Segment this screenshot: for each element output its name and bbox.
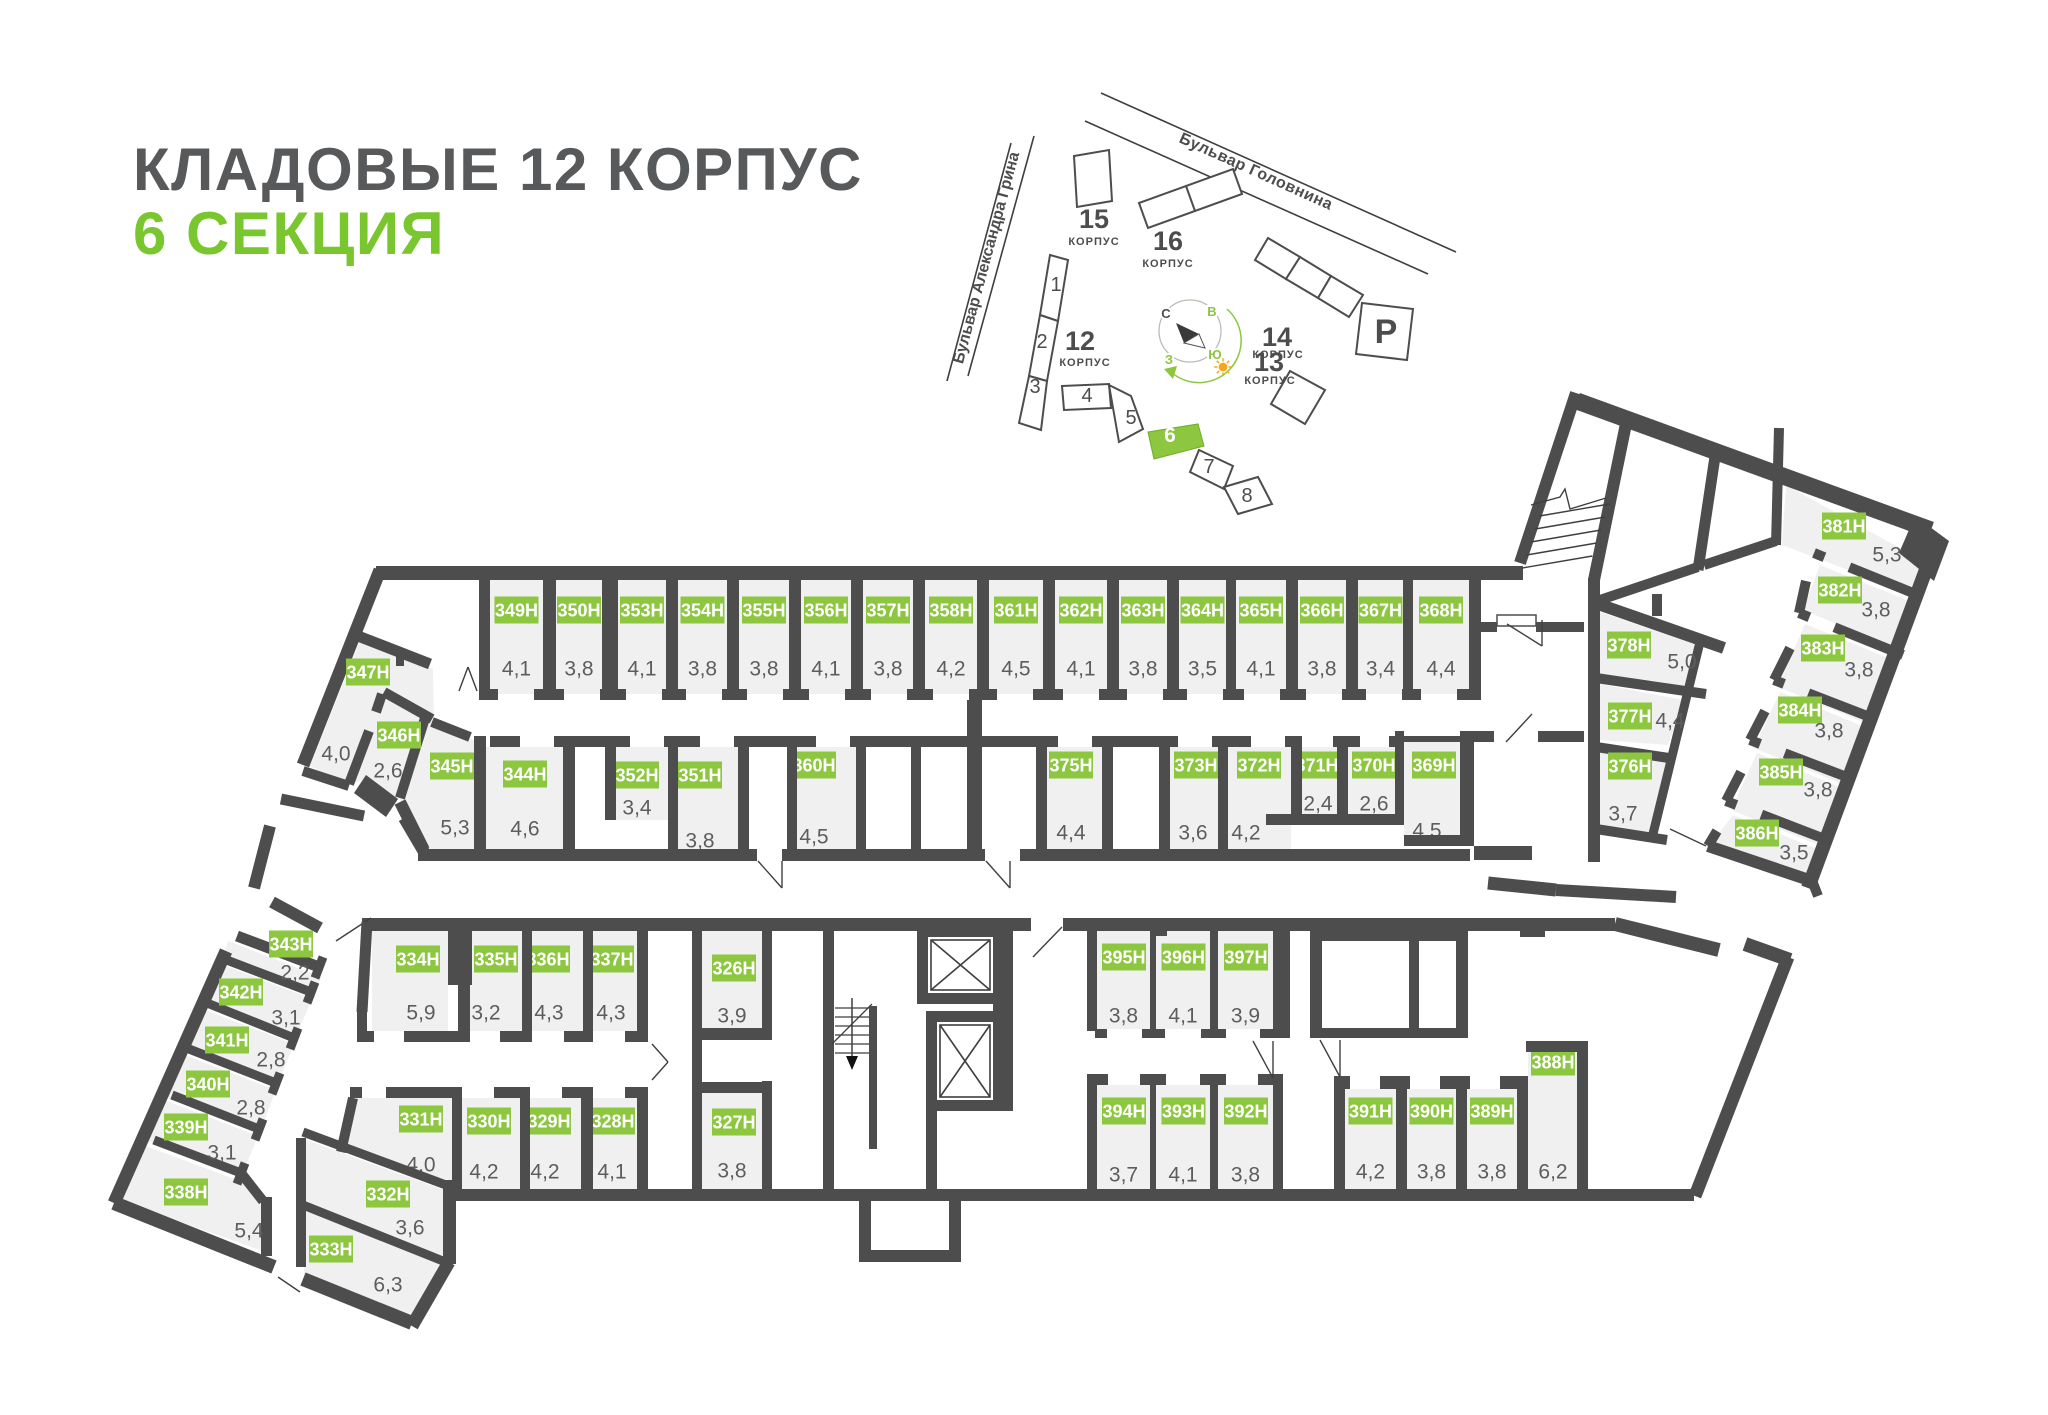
svg-text:3,6: 3,6: [1178, 822, 1207, 845]
svg-text:3,9: 3,9: [717, 1005, 746, 1028]
svg-text:340Н: 340Н: [186, 1074, 229, 1094]
svg-text:5,9: 5,9: [406, 1002, 435, 1025]
svg-text:2,6: 2,6: [1359, 793, 1388, 816]
svg-text:336Н: 336Н: [526, 949, 569, 969]
svg-text:330Н: 330Н: [467, 1111, 510, 1131]
svg-text:4,3: 4,3: [596, 1002, 625, 1025]
svg-text:382Н: 382Н: [1818, 580, 1861, 600]
svg-text:337Н: 337Н: [590, 949, 633, 969]
svg-text:4,4: 4,4: [1056, 822, 1086, 845]
svg-text:390Н: 390Н: [1410, 1101, 1453, 1121]
svg-text:333Н: 333Н: [309, 1239, 352, 1259]
svg-text:349Н: 349Н: [495, 600, 538, 620]
svg-text:395Н: 395Н: [1102, 947, 1145, 967]
svg-text:344Н: 344Н: [503, 764, 546, 784]
svg-text:5,4: 5,4: [234, 1220, 264, 1243]
svg-text:3,8: 3,8: [1128, 658, 1157, 681]
svg-text:396Н: 396Н: [1162, 947, 1205, 967]
svg-text:370Н: 370Н: [1352, 755, 1395, 775]
svg-text:347Н: 347Н: [346, 662, 389, 682]
svg-text:361Н: 361Н: [994, 600, 1037, 620]
svg-text:341Н: 341Н: [205, 1030, 248, 1050]
svg-text:366Н: 366Н: [1300, 600, 1343, 620]
svg-text:КОРПУС: КОРПУС: [1142, 258, 1193, 270]
svg-text:373Н: 373Н: [1174, 755, 1217, 775]
svg-text:351Н: 351Н: [678, 765, 721, 785]
svg-text:3,8: 3,8: [1861, 599, 1890, 622]
svg-text:368Н: 368Н: [1419, 600, 1462, 620]
svg-text:4,5: 4,5: [799, 826, 828, 849]
svg-text:3,5: 3,5: [1779, 842, 1808, 865]
svg-text:3,4: 3,4: [622, 797, 652, 820]
svg-text:3,8: 3,8: [717, 1160, 746, 1183]
svg-text:332Н: 332Н: [366, 1184, 409, 1204]
svg-text:377Н: 377Н: [1608, 706, 1651, 726]
svg-text:384Н: 384Н: [1778, 700, 1821, 720]
svg-text:331Н: 331Н: [399, 1109, 442, 1129]
svg-text:16: 16: [1153, 226, 1183, 256]
svg-text:378Н: 378Н: [1607, 635, 1650, 655]
svg-text:2,8: 2,8: [236, 1097, 265, 1120]
svg-text:3,1: 3,1: [271, 1007, 300, 1030]
svg-text:342Н: 342Н: [219, 982, 262, 1002]
svg-text:4,0: 4,0: [321, 743, 350, 766]
svg-text:393Н: 393Н: [1162, 1101, 1205, 1121]
svg-text:3,2: 3,2: [471, 1002, 500, 1025]
svg-text:5,3: 5,3: [1872, 544, 1901, 567]
svg-text:3,4: 3,4: [1366, 658, 1396, 681]
svg-text:338Н: 338Н: [164, 1182, 207, 1202]
svg-text:3,6: 3,6: [395, 1217, 424, 1240]
svg-text:343Н: 343Н: [269, 934, 312, 954]
svg-text:5,0: 5,0: [1667, 651, 1696, 674]
svg-text:346Н: 346Н: [377, 725, 420, 745]
svg-text:3,1: 3,1: [207, 1142, 236, 1165]
svg-text:386Н: 386Н: [1735, 823, 1778, 843]
svg-text:381Н: 381Н: [1822, 516, 1865, 536]
svg-text:350Н: 350Н: [557, 600, 600, 620]
svg-text:3,8: 3,8: [1231, 1164, 1260, 1187]
svg-text:367Н: 367Н: [1359, 600, 1402, 620]
svg-text:Ю: Ю: [1208, 347, 1221, 362]
svg-text:326Н: 326Н: [712, 958, 755, 978]
svg-text:363Н: 363Н: [1121, 600, 1164, 620]
svg-text:4,1: 4,1: [1066, 658, 1095, 681]
svg-text:6 СЕКЦИЯ: 6 СЕКЦИЯ: [133, 200, 445, 267]
svg-text:362Н: 362Н: [1059, 600, 1102, 620]
svg-text:13: 13: [1254, 347, 1284, 377]
svg-text:354Н: 354Н: [681, 600, 724, 620]
svg-text:2,2: 2,2: [280, 962, 309, 985]
svg-text:360Н: 360Н: [792, 755, 835, 775]
svg-text:4: 4: [1081, 385, 1092, 407]
svg-text:3: 3: [1029, 376, 1040, 398]
svg-text:383Н: 383Н: [1801, 638, 1844, 658]
svg-text:4,1: 4,1: [1246, 658, 1275, 681]
svg-text:355Н: 355Н: [742, 600, 785, 620]
svg-text:353Н: 353Н: [620, 600, 663, 620]
svg-text:4,3: 4,3: [534, 1002, 563, 1025]
svg-text:5: 5: [1125, 407, 1136, 429]
svg-text:328Н: 328Н: [591, 1111, 634, 1131]
svg-text:335Н: 335Н: [474, 949, 517, 969]
svg-text:7: 7: [1203, 456, 1214, 478]
svg-text:4,6: 4,6: [510, 818, 539, 841]
svg-text:В: В: [1207, 304, 1216, 319]
svg-text:3,8: 3,8: [564, 658, 593, 681]
svg-text:4,1: 4,1: [597, 1161, 626, 1184]
svg-text:375Н: 375Н: [1049, 755, 1092, 775]
svg-text:327Н: 327Н: [712, 1112, 755, 1132]
svg-text:3,8: 3,8: [1844, 659, 1873, 682]
svg-text:4,2: 4,2: [1356, 1161, 1385, 1184]
svg-text:352Н: 352Н: [615, 765, 658, 785]
svg-text:356Н: 356Н: [804, 600, 847, 620]
svg-text:4,5: 4,5: [1001, 658, 1030, 681]
svg-text:4,2: 4,2: [530, 1161, 559, 1184]
svg-text:С: С: [1161, 306, 1171, 321]
svg-text:6: 6: [1164, 424, 1176, 447]
svg-text:4,1: 4,1: [502, 658, 531, 681]
svg-text:364Н: 364Н: [1181, 600, 1224, 620]
svg-text:КЛАДОВЫЕ 12 КОРПУС: КЛАДОВЫЕ 12 КОРПУС: [133, 136, 863, 203]
svg-text:3,8: 3,8: [1307, 658, 1336, 681]
svg-text:3,5: 3,5: [1188, 658, 1217, 681]
svg-text:Р: Р: [1375, 313, 1398, 351]
svg-text:372Н: 372Н: [1237, 755, 1280, 775]
svg-text:3,8: 3,8: [688, 658, 717, 681]
svg-text:4,2: 4,2: [936, 658, 965, 681]
svg-text:2,4: 2,4: [1303, 793, 1333, 816]
svg-text:3,7: 3,7: [1109, 1164, 1138, 1187]
svg-text:3,8: 3,8: [873, 658, 902, 681]
svg-text:4,2: 4,2: [1231, 822, 1260, 845]
svg-text:357Н: 357Н: [866, 600, 909, 620]
svg-text:392Н: 392Н: [1224, 1101, 1267, 1121]
svg-text:КОРПУС: КОРПУС: [1059, 357, 1110, 369]
svg-text:4,2: 4,2: [469, 1161, 498, 1184]
svg-text:397Н: 397Н: [1224, 947, 1267, 967]
svg-text:КОРПУС: КОРПУС: [1068, 236, 1119, 248]
svg-text:388Н: 388Н: [1531, 1052, 1574, 1072]
svg-text:4,1: 4,1: [1168, 1005, 1197, 1028]
svg-text:2,6: 2,6: [373, 760, 402, 783]
svg-text:4,4: 4,4: [1655, 710, 1685, 733]
svg-text:339Н: 339Н: [164, 1117, 207, 1137]
svg-text:365Н: 365Н: [1239, 600, 1282, 620]
svg-text:358Н: 358Н: [929, 600, 972, 620]
svg-text:3,8: 3,8: [1109, 1005, 1138, 1028]
svg-text:391Н: 391Н: [1349, 1101, 1392, 1121]
svg-text:345Н: 345Н: [430, 756, 473, 776]
svg-text:6,2: 6,2: [1538, 1161, 1567, 1184]
svg-text:12: 12: [1065, 326, 1095, 356]
svg-text:2,8: 2,8: [256, 1049, 285, 1072]
svg-text:4,1: 4,1: [627, 658, 656, 681]
svg-text:394Н: 394Н: [1102, 1101, 1145, 1121]
svg-text:5,3: 5,3: [440, 817, 469, 840]
svg-text:3,8: 3,8: [1814, 720, 1843, 743]
svg-text:8: 8: [1241, 485, 1252, 507]
svg-text:15: 15: [1079, 204, 1109, 234]
svg-text:3,8: 3,8: [749, 658, 778, 681]
svg-text:3,8: 3,8: [1417, 1161, 1446, 1184]
svg-text:385Н: 385Н: [1759, 762, 1802, 782]
svg-text:389Н: 389Н: [1470, 1101, 1513, 1121]
svg-text:3,8: 3,8: [1477, 1161, 1506, 1184]
svg-text:334Н: 334Н: [396, 949, 439, 969]
svg-text:КОРПУС: КОРПУС: [1244, 375, 1295, 387]
svg-text:4,1: 4,1: [811, 658, 840, 681]
svg-text:3,7: 3,7: [1608, 803, 1637, 826]
svg-text:4,1: 4,1: [1168, 1164, 1197, 1187]
svg-text:4,4: 4,4: [1426, 658, 1456, 681]
svg-text:6,3: 6,3: [373, 1274, 402, 1297]
svg-text:З: З: [1165, 352, 1173, 367]
svg-text:369Н: 369Н: [1412, 755, 1455, 775]
svg-text:1: 1: [1050, 274, 1061, 296]
svg-text:2: 2: [1036, 331, 1047, 353]
svg-text:3,9: 3,9: [1231, 1005, 1260, 1028]
svg-text:376Н: 376Н: [1608, 756, 1651, 776]
svg-text:329Н: 329Н: [527, 1111, 570, 1131]
svg-text:3,8: 3,8: [1803, 779, 1832, 802]
